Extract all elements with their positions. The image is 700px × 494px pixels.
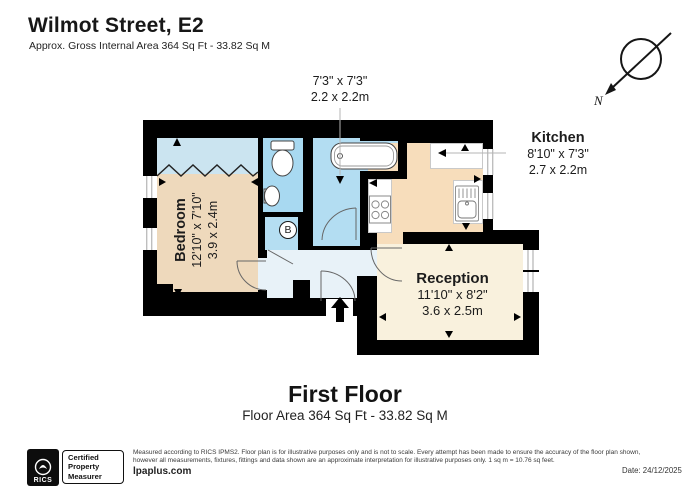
boiler-badge: B bbox=[279, 221, 297, 239]
kitchen-dims-metric: 2.7 x 2.2m bbox=[502, 163, 614, 179]
kitchen-label: Kitchen 8'10" x 7'3" 2.7 x 2.2m bbox=[502, 130, 614, 178]
disclaimer: Measured according to RICS IPMS2. Floor … bbox=[133, 449, 691, 466]
cert-line-2: Property bbox=[68, 462, 123, 471]
cert-line-1: Certified bbox=[68, 453, 123, 462]
rics-logo: RICS bbox=[27, 449, 59, 486]
floor-name: First Floor bbox=[145, 381, 545, 408]
reception-label: Reception 11'10" x 8'2" 3.6 x 2.5m bbox=[385, 270, 520, 318]
disclaimer-line-2: however all measurements, fixtures, fitt… bbox=[133, 457, 691, 465]
wc-basin-icon bbox=[264, 186, 280, 206]
kitchen-sink-icon bbox=[456, 186, 479, 221]
bedroom-dims-metric: 3.9 x 2.4m bbox=[205, 192, 221, 268]
bathtub-icon bbox=[331, 143, 397, 169]
rics-wordmark: RICS bbox=[34, 477, 53, 484]
kitchen-dims-imperial: 8'10" x 7'3" bbox=[502, 147, 614, 163]
kitchen-name: Kitchen bbox=[502, 130, 614, 147]
reception-name: Reception bbox=[385, 270, 520, 287]
stove-icon bbox=[370, 196, 391, 223]
compass-north-label: N bbox=[593, 93, 604, 108]
toilet-icon bbox=[271, 141, 294, 176]
cert-line-3: Measurer bbox=[68, 472, 123, 481]
floorplan-page: Wilmot Street, E2 Approx. Gross Internal… bbox=[0, 0, 700, 494]
bedroom-name: Bedroom bbox=[173, 192, 190, 268]
entry-arrow-icon bbox=[331, 297, 349, 322]
compass-icon: N bbox=[593, 33, 671, 108]
floor-area: Floor Area 364 Sq Ft - 33.82 Sq M bbox=[145, 408, 545, 423]
plan-date: Date: 24/12/2025 bbox=[622, 466, 682, 475]
bathroom-dims-metric: 2.2 x 2.2m bbox=[280, 90, 400, 106]
bathroom-dims-imperial: 7'3" x 7'3" bbox=[280, 74, 400, 90]
bathroom-dims-label: 7'3" x 7'3" 2.2 x 2.2m bbox=[280, 74, 400, 105]
bedroom-label: Bedroom 12'10" x 7'10" 3.9 x 2.4m bbox=[142, 175, 252, 285]
reception-dims-imperial: 11'10" x 8'2" bbox=[385, 287, 520, 303]
reception-dims-metric: 3.6 x 2.5m bbox=[385, 303, 520, 319]
disclaimer-line-1: Measured according to RICS IPMS2. Floor … bbox=[133, 449, 691, 457]
certified-property-measurer-badge: Certified Property Measurer bbox=[62, 450, 124, 484]
website-link[interactable]: lpaplus.com bbox=[133, 466, 191, 477]
bedroom-dims-imperial: 12'10" x 7'10" bbox=[190, 192, 206, 268]
rics-emblem-icon bbox=[33, 457, 53, 477]
